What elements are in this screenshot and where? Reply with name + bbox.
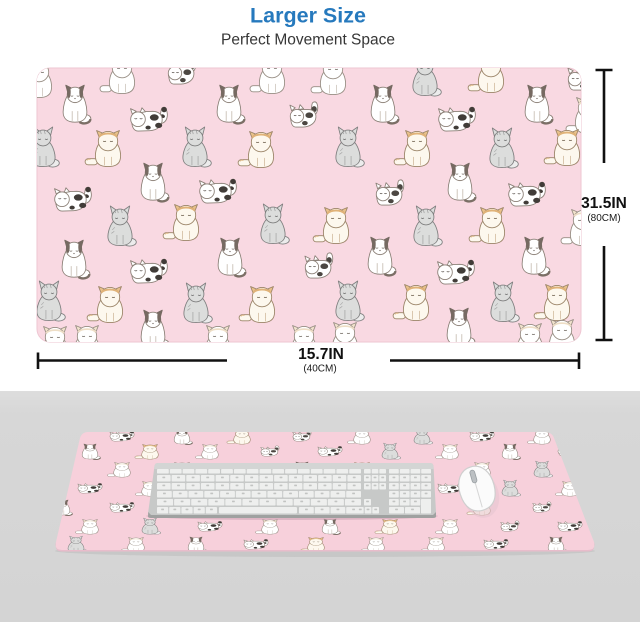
svg-text:Larger Size: Larger Size [250, 4, 366, 28]
svg-text:31.5IN: 31.5IN [581, 195, 627, 212]
svg-text:(80CM): (80CM) [587, 213, 620, 224]
svg-text:15.7IN: 15.7IN [298, 346, 344, 363]
svg-text:Perfect Movement Space: Perfect Movement Space [221, 32, 395, 49]
svg-text:(40CM): (40CM) [303, 364, 336, 375]
